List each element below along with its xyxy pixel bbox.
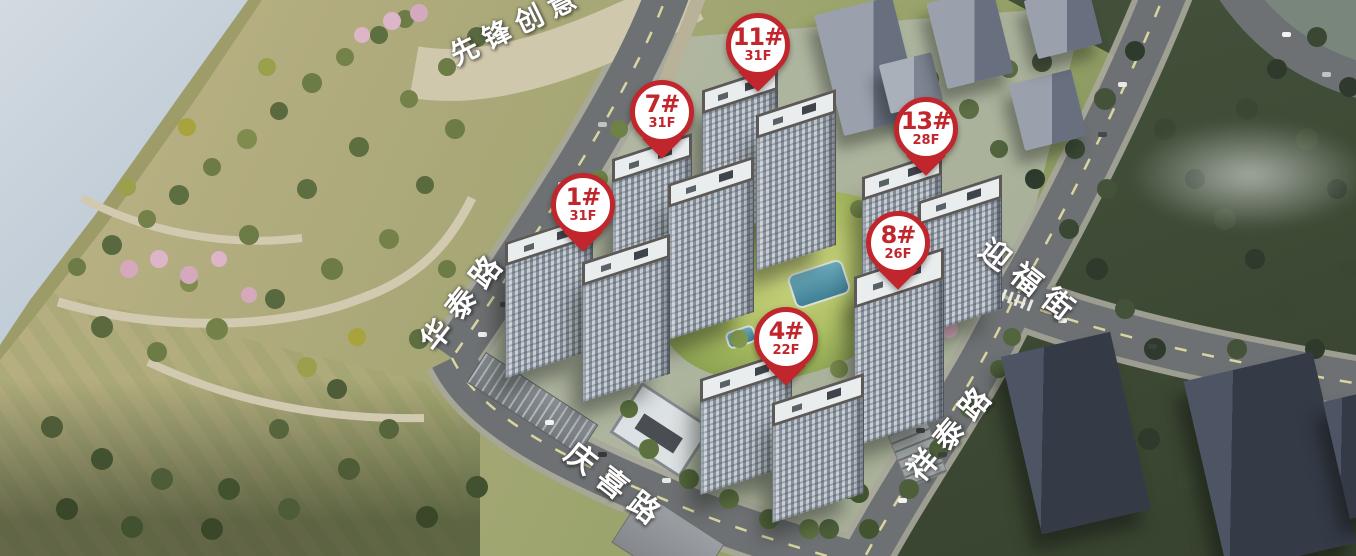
building-floors: 22F [773, 343, 800, 359]
building-marker-1[interactable]: 1# 31F [549, 173, 617, 246]
building-floors: 26F [885, 247, 912, 263]
marker-bubble: 7# 31F [630, 80, 694, 144]
road-topright [1228, 0, 1356, 82]
building-number: 4# [769, 319, 804, 343]
marker-bubble: 4# 22F [754, 307, 818, 371]
vehicles [0, 0, 9, 5]
building-floors: 31F [745, 49, 772, 65]
building-number: 11# [733, 25, 784, 49]
building-floors: 28F [913, 133, 940, 149]
building-number: 8# [881, 223, 916, 247]
building-marker-13[interactable]: 13# 28F [892, 97, 960, 170]
tower-1-slab [582, 234, 670, 403]
marker-bubble: 1# 31F [551, 173, 615, 237]
tower-facade [756, 113, 836, 271]
marker-bubble: 8# 26F [866, 211, 930, 275]
haze-overlay [1130, 120, 1356, 230]
building-number: 1# [566, 185, 601, 209]
park-trails [58, 198, 472, 418]
building-number: 13# [901, 109, 952, 133]
building-marker-8[interactable]: 8# 26F [864, 211, 932, 284]
building-marker-7[interactable]: 7# 31F [628, 80, 696, 153]
building-marker-4[interactable]: 4# 22F [752, 307, 820, 380]
building-floors: 31F [570, 209, 597, 225]
site-plan-canvas: 华泰路 庆喜路 祥泰路 迎福街 先锋创意 1# 31F 4# 22F 7# 31… [0, 0, 1356, 556]
building-marker-11[interactable]: 11# 31F [724, 13, 792, 86]
marker-bubble: 13# 28F [894, 97, 958, 161]
building-number: 7# [645, 92, 680, 116]
tower-11-slab [756, 89, 836, 271]
tower-facade [668, 180, 754, 340]
tower-7-slab [668, 156, 754, 340]
building-floors: 31F [649, 116, 676, 132]
marker-bubble: 11# 31F [726, 13, 790, 77]
